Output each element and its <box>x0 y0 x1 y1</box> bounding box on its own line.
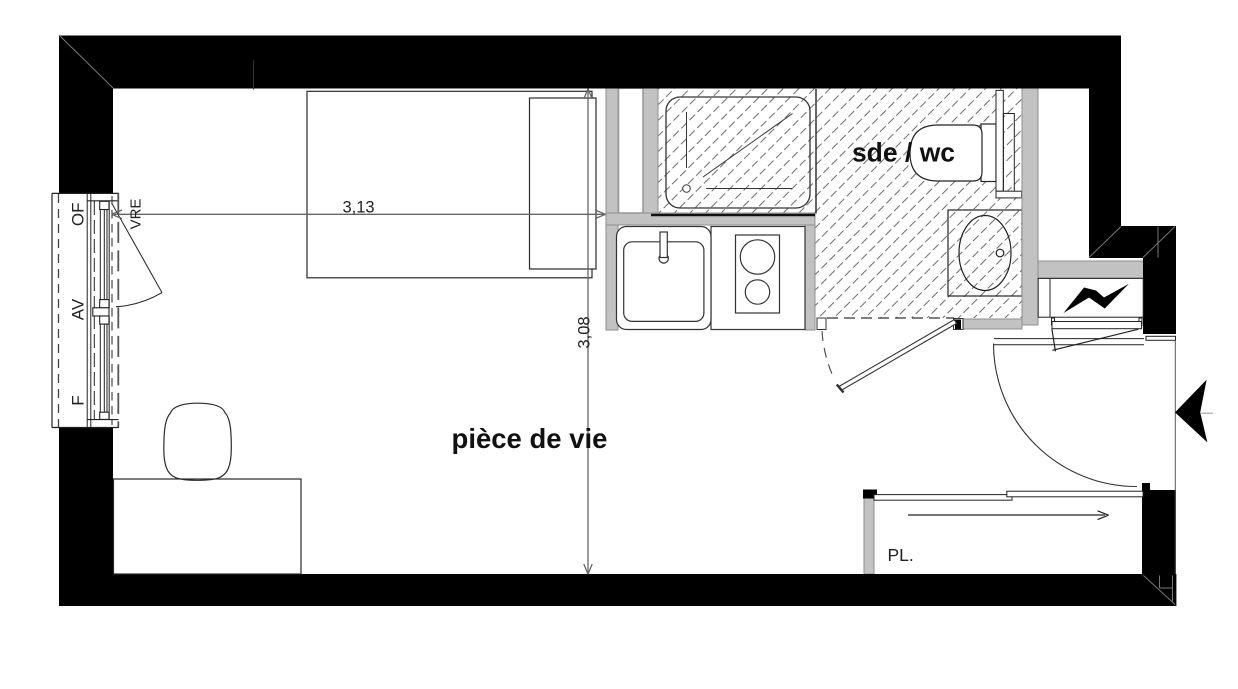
svg-text:F: F <box>69 395 88 405</box>
svg-text:OF: OF <box>69 202 88 226</box>
svg-text:VRE: VRE <box>127 199 144 230</box>
svg-text:pièce de vie: pièce de vie <box>452 423 608 454</box>
svg-text:3,13: 3,13 <box>342 199 374 217</box>
svg-text:sde / wc: sde / wc <box>852 138 955 168</box>
svg-text:3,08: 3,08 <box>576 316 594 348</box>
svg-text:AV: AV <box>69 298 88 320</box>
svg-text:PL.: PL. <box>888 545 914 565</box>
